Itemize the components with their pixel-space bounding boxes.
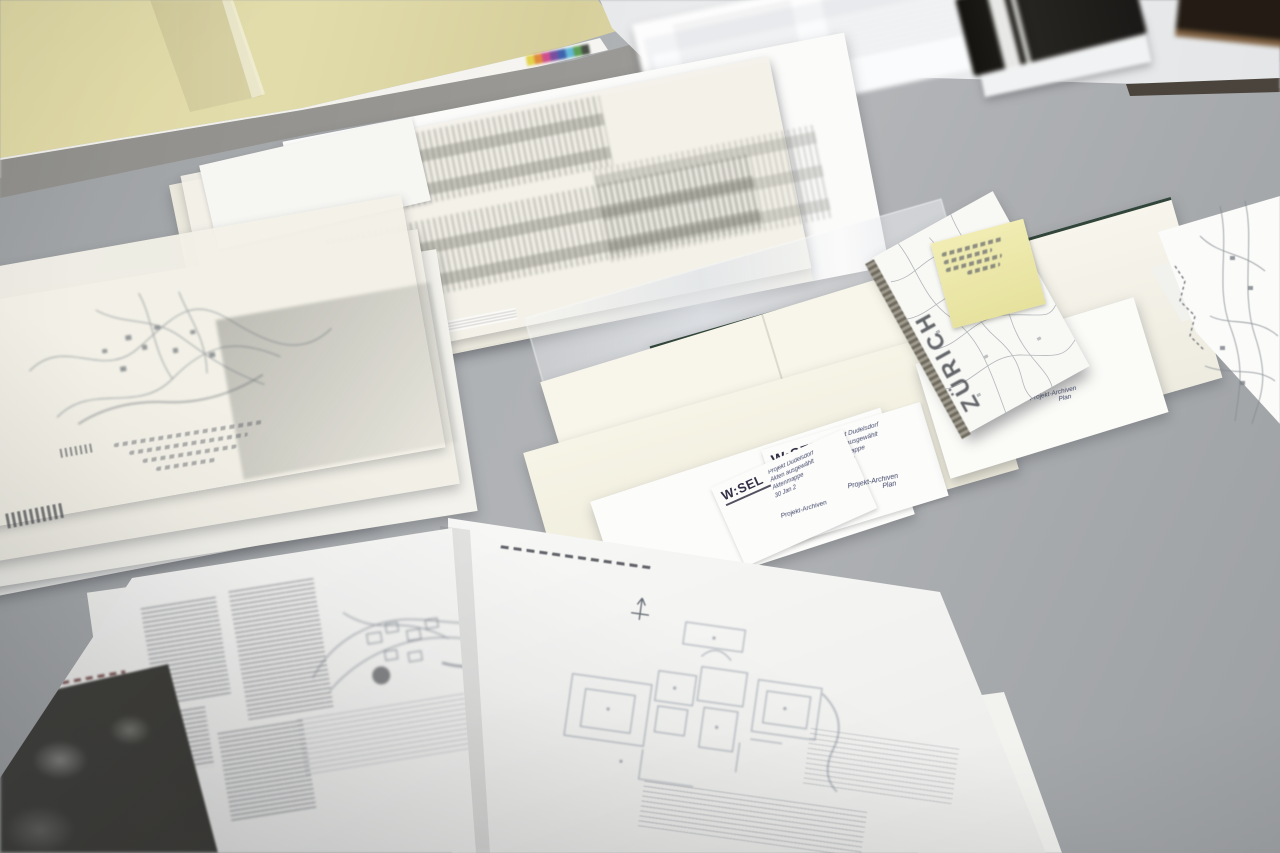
color-swatch	[581, 44, 591, 55]
map-fragment-texture	[1160, 196, 1280, 426]
photo-architects-desk: W:SEL Projekt Dudelsdorf Akten ausgewähl…	[0, 0, 1280, 853]
page-header-text	[501, 545, 655, 569]
